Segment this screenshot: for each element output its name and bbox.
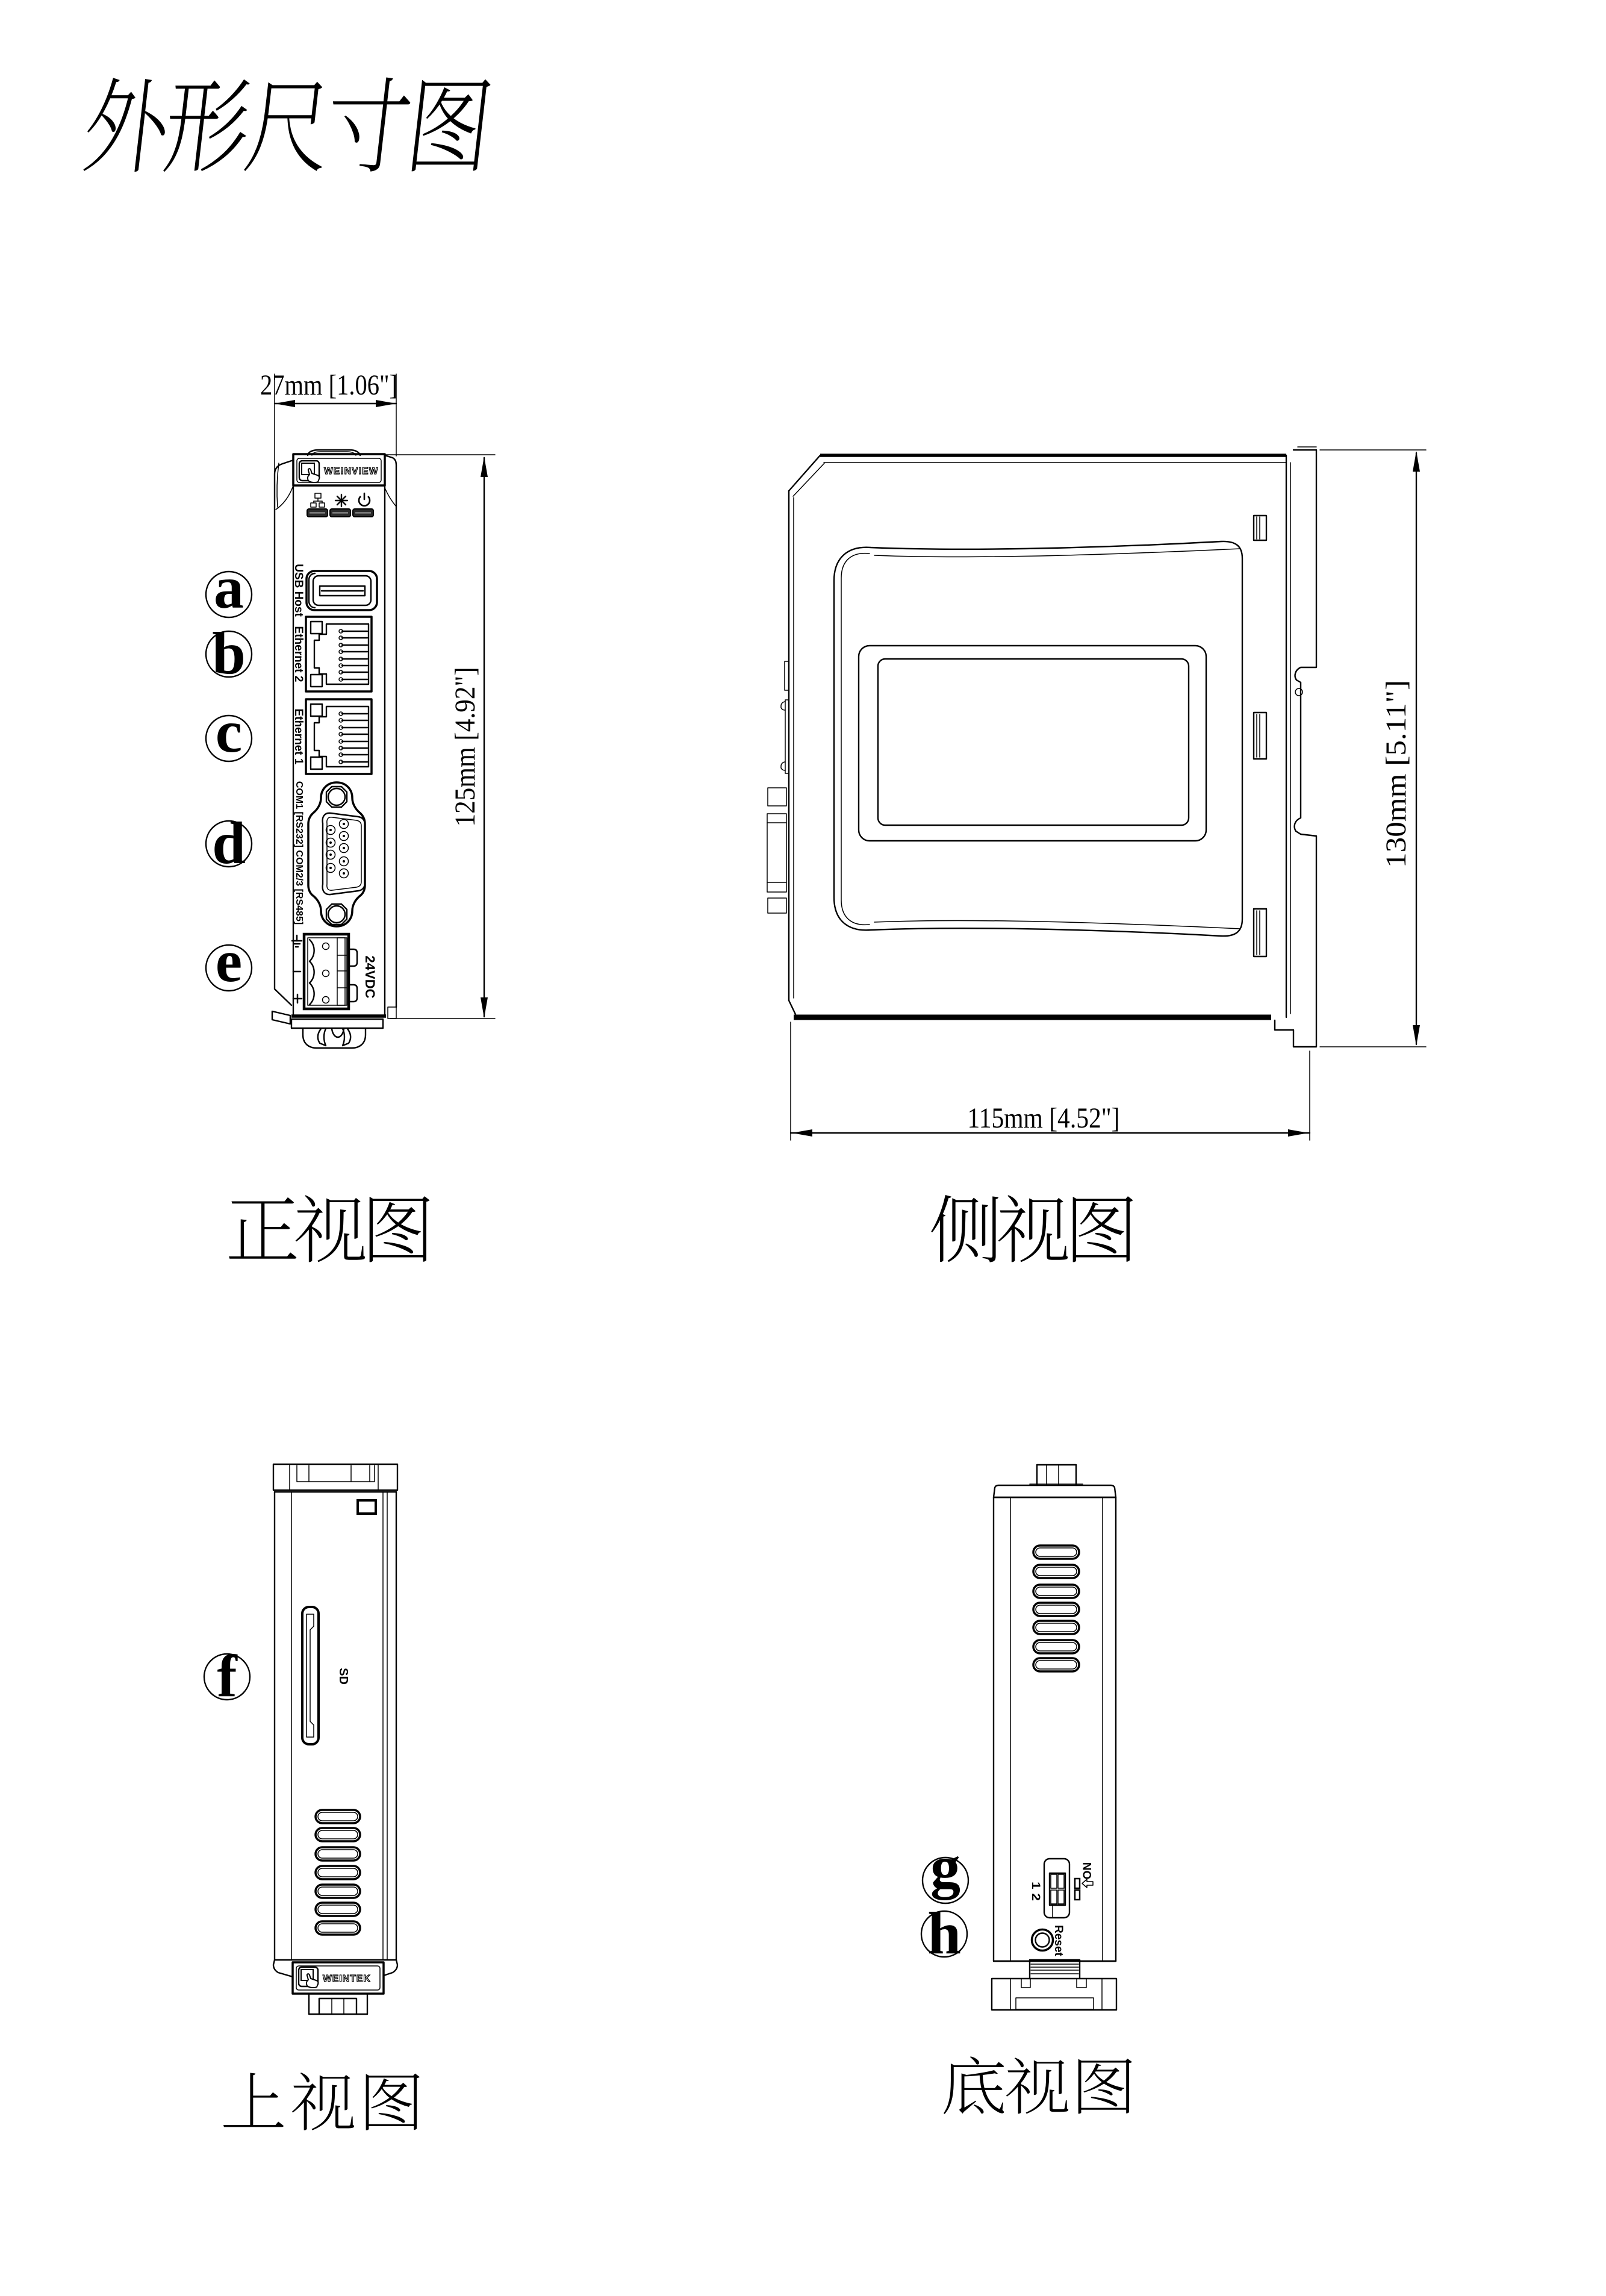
svg-text:e: e [216,928,242,994]
svg-text:f: f [217,1642,238,1709]
svg-text:ON: ON [1082,1862,1094,1880]
svg-text:d: d [212,810,246,876]
svg-text:c: c [216,698,242,765]
svg-text:WEINTEK: WEINTEK [323,1974,371,1984]
svg-text:h: h [927,1900,961,1967]
svg-text:Ethernet 1: Ethernet 1 [292,709,305,765]
svg-text:WE!NVIEW: WE!NVIEW [324,466,379,476]
svg-text:115mm [4.52"]: 115mm [4.52"] [968,1102,1120,1134]
svg-text:USB Host: USB Host [292,564,305,617]
svg-text:g: g [930,1833,960,1900]
svg-text:27mm [1.06"]: 27mm [1.06"] [260,369,397,401]
svg-text:Ethernet 2: Ethernet 2 [292,626,305,682]
svg-text:b: b [212,620,246,687]
svg-text:COM1 [RS232] COM2/3 [RS485]: COM1 [RS232] COM2/3 [RS485] [294,781,304,925]
svg-text:1 2: 1 2 [1029,1882,1042,1901]
svg-text:a: a [214,554,244,621]
svg-text:Reset: Reset [1052,1925,1065,1956]
svg-text:125mm [4.92"]: 125mm [4.92"] [449,667,481,827]
svg-text:130mm [5.11"]: 130mm [5.11"] [1380,680,1412,868]
svg-text:24VDC: 24VDC [363,956,378,999]
svg-text:SD: SD [337,1668,350,1685]
